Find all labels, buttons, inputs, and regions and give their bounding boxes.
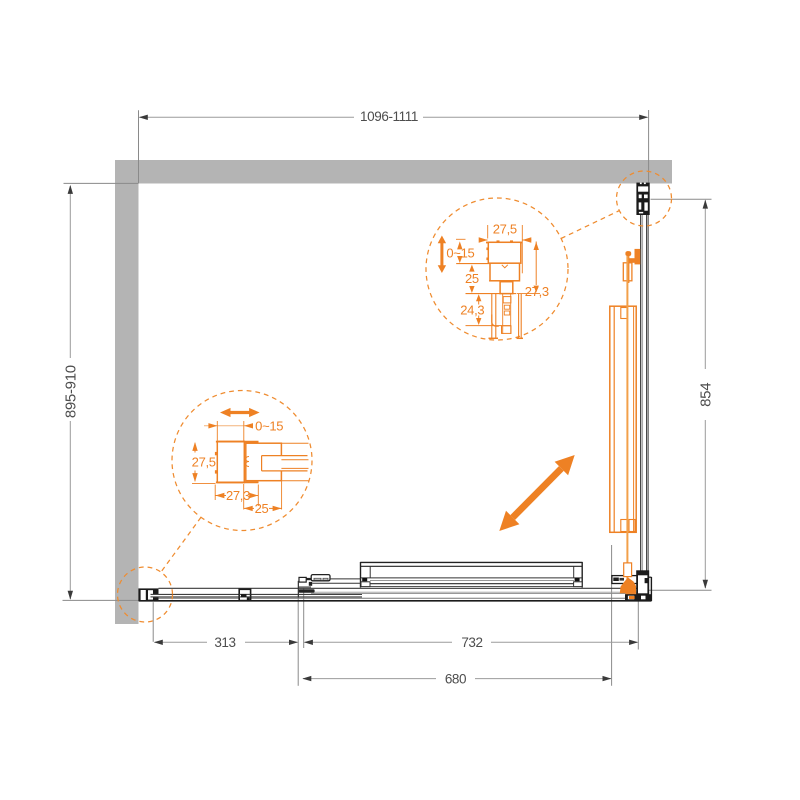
svg-text:25: 25 xyxy=(255,501,269,516)
svg-text:27,5: 27,5 xyxy=(493,222,517,237)
svg-text:732: 732 xyxy=(461,635,482,650)
svg-text:0~15: 0~15 xyxy=(446,246,474,261)
svg-text:680: 680 xyxy=(445,671,466,686)
svg-text:0~15: 0~15 xyxy=(255,419,283,434)
svg-text:27,3: 27,3 xyxy=(525,284,549,299)
svg-text:25: 25 xyxy=(465,271,479,286)
svg-text:854: 854 xyxy=(697,383,714,407)
svg-text:24,3: 24,3 xyxy=(460,302,484,317)
svg-text:895-910: 895-910 xyxy=(62,365,79,418)
svg-text:1096-1111: 1096-1111 xyxy=(360,109,418,124)
svg-text:313: 313 xyxy=(214,635,235,650)
svg-text:27,3: 27,3 xyxy=(226,488,250,503)
svg-text:27,5: 27,5 xyxy=(192,455,216,470)
